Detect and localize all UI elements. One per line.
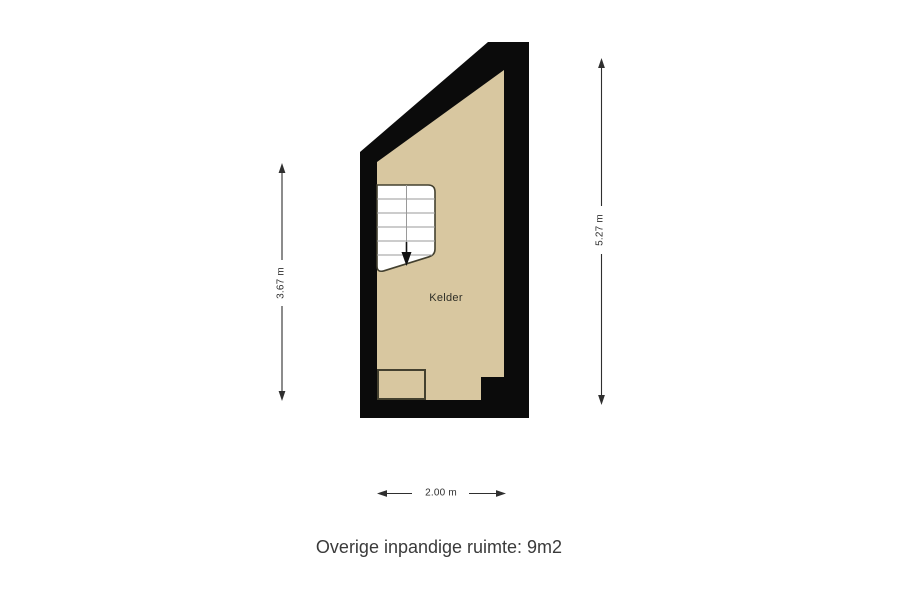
room-label: Kelder	[429, 292, 463, 304]
arrowhead-left-icon	[377, 490, 387, 497]
arrowhead-up-icon	[598, 58, 605, 68]
caption-text: Overige inpandige ruimte: 9m2	[316, 537, 562, 558]
arrowhead-up-icon	[279, 163, 286, 173]
dimension-right-label: 5.27 m	[595, 214, 606, 246]
dimension-bottom-label: 2.00 m	[422, 488, 460, 499]
arrowhead-down-icon	[279, 391, 286, 401]
dimension-left-label: 3.67 m	[276, 267, 287, 299]
floorplan-page: Kelder 3.67 m 5.27 m 2.00 m Overige inpa…	[0, 0, 900, 600]
arrowhead-down-icon	[598, 395, 605, 405]
arrowhead-right-icon	[496, 490, 506, 497]
